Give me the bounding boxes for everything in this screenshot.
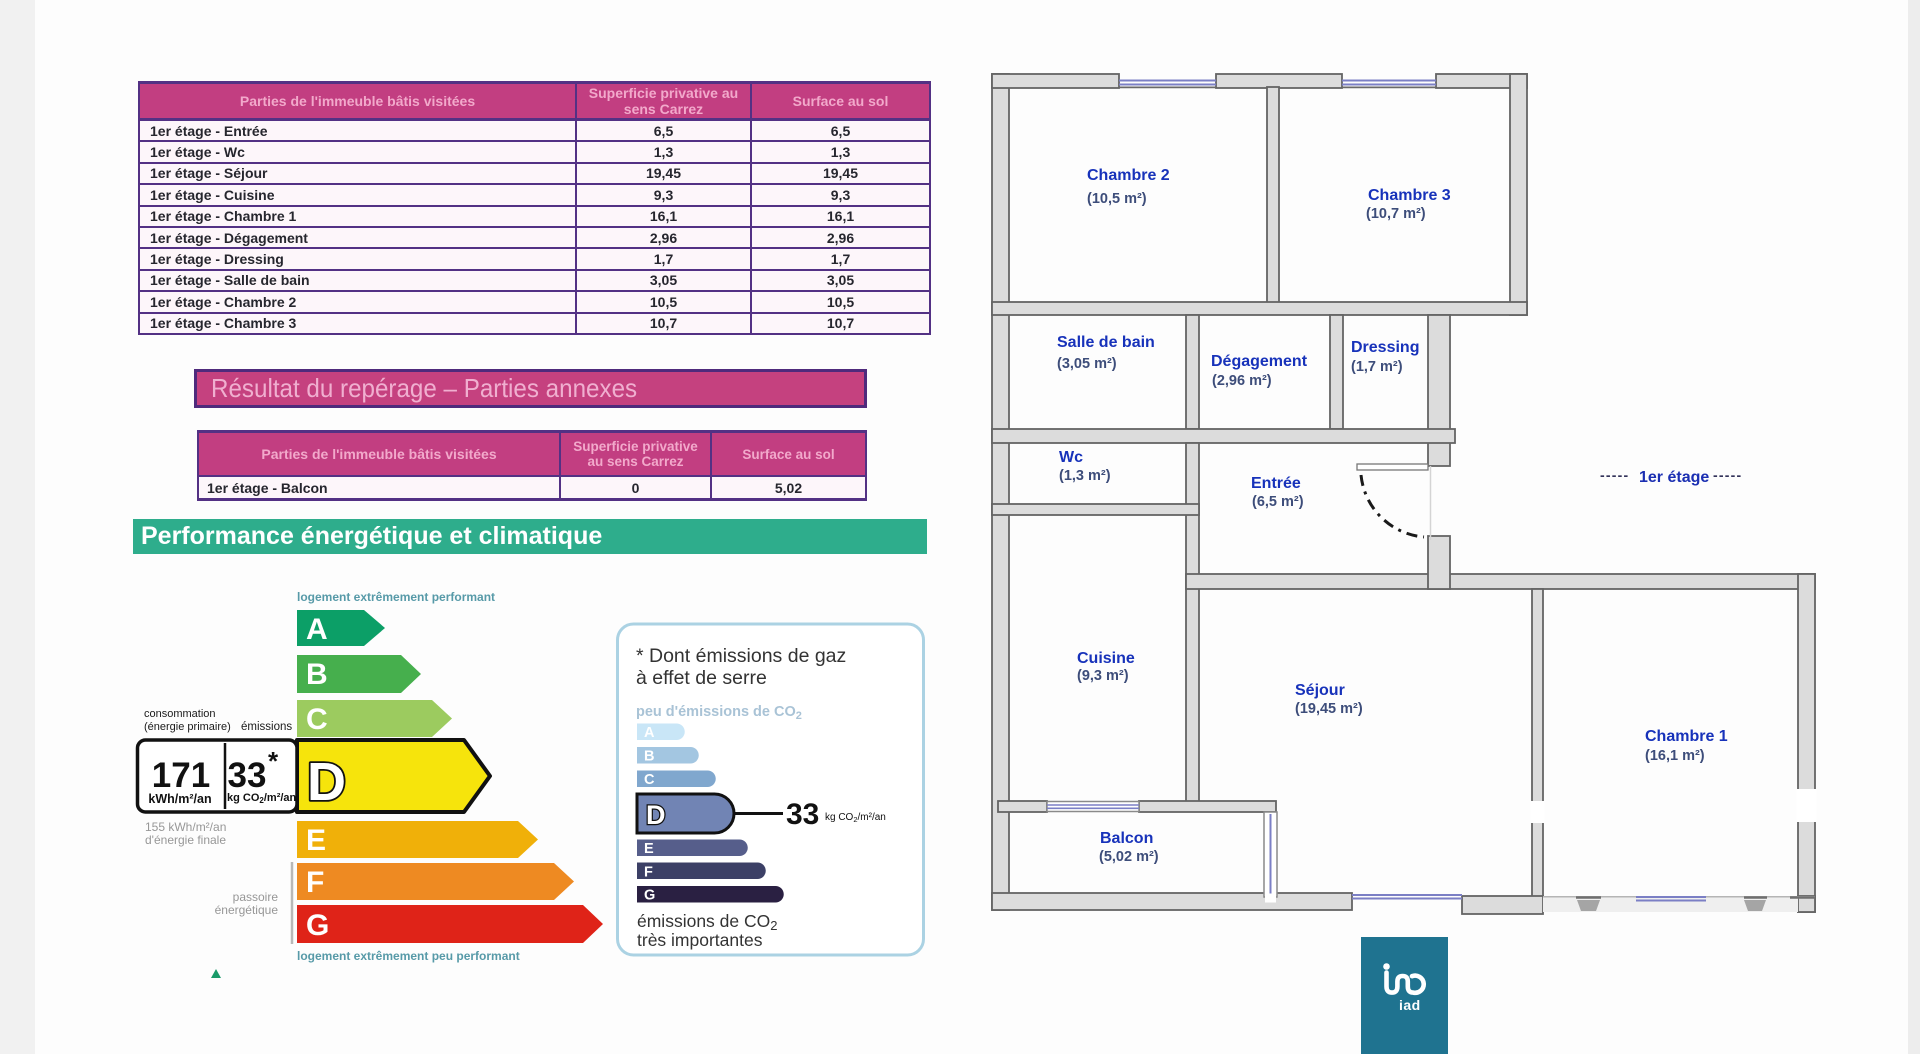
svg-text:(9,3 m²): (9,3 m²): [1077, 668, 1129, 684]
svg-text:(5,02 m²): (5,02 m²): [1099, 849, 1159, 865]
svg-text:(1,3 m²): (1,3 m²): [1059, 468, 1111, 484]
svg-text:Chambre 1: Chambre 1: [1645, 728, 1728, 745]
svg-text:-----: -----: [1713, 467, 1742, 483]
svg-text:-----: -----: [1600, 467, 1629, 483]
svg-text:E: E: [644, 841, 654, 857]
svg-text:171: 171: [152, 756, 210, 795]
svg-text:33: 33: [228, 756, 267, 795]
svg-text:émissions: émissions: [241, 721, 292, 733]
svg-text:B: B: [306, 658, 328, 691]
svg-text:G: G: [306, 909, 329, 942]
svg-text:kWh/m²/an: kWh/m²/an: [148, 792, 211, 806]
svg-text:consommation: consommation: [144, 708, 216, 720]
svg-text:D: D: [307, 752, 346, 812]
svg-text:F: F: [644, 865, 653, 881]
svg-text:très importantes: très importantes: [637, 930, 763, 950]
svg-text:*: *: [268, 746, 279, 776]
svg-text:Salle de bain: Salle de bain: [1057, 334, 1155, 351]
svg-text:Wc: Wc: [1059, 449, 1083, 466]
svg-text:Dégagement: Dégagement: [1211, 353, 1308, 370]
svg-text:B: B: [644, 749, 654, 765]
svg-text:E: E: [306, 824, 326, 857]
svg-text:Chambre 3: Chambre 3: [1368, 187, 1451, 204]
svg-text:(16,1 m²): (16,1 m²): [1645, 748, 1705, 764]
svg-text:D: D: [646, 800, 666, 830]
svg-text:(10,7 m²): (10,7 m²): [1366, 206, 1426, 222]
svg-text:Entrée: Entrée: [1251, 475, 1301, 492]
svg-text:Chambre 2: Chambre 2: [1087, 167, 1170, 184]
svg-text:d'énergie finale: d'énergie finale: [145, 833, 226, 847]
svg-text:Dressing: Dressing: [1351, 339, 1419, 356]
svg-text:(1,7 m²): (1,7 m²): [1351, 359, 1403, 375]
svg-text:passoire: passoire: [233, 890, 279, 904]
svg-text:C: C: [644, 772, 655, 788]
svg-text:logement extrêmement peu perfo: logement extrêmement peu performant: [297, 949, 520, 963]
svg-text:(10,5 m²): (10,5 m²): [1087, 191, 1147, 207]
svg-text:peu d'émissions de CO2: peu d'émissions de CO2: [636, 704, 802, 722]
svg-text:Cuisine: Cuisine: [1077, 650, 1135, 667]
svg-text:* Dont émissions de gaz: * Dont émissions de gaz: [636, 645, 846, 667]
svg-text:(énergie primaire): (énergie primaire): [144, 721, 231, 733]
svg-text:A: A: [306, 613, 328, 646]
svg-text:F: F: [306, 866, 324, 899]
svg-text:1er étage: 1er étage: [1639, 469, 1709, 486]
svg-text:logement extrêmement performan: logement extrêmement performant: [297, 590, 495, 604]
svg-text:(6,5 m²): (6,5 m²): [1252, 494, 1304, 510]
svg-text:(19,45 m²): (19,45 m²): [1295, 701, 1363, 717]
svg-text:33: 33: [786, 798, 819, 831]
svg-text:A: A: [644, 725, 655, 741]
svg-text:C: C: [306, 703, 328, 736]
svg-text:(2,96 m²): (2,96 m²): [1212, 373, 1272, 389]
svg-text:G: G: [644, 888, 655, 904]
svg-text:à effet de serre: à effet de serre: [636, 667, 767, 689]
svg-text:Séjour: Séjour: [1295, 682, 1345, 699]
svg-text:155 kWh/m²/an: 155 kWh/m²/an: [145, 820, 226, 834]
svg-text:(3,05 m²): (3,05 m²): [1057, 356, 1117, 372]
svg-text:énergétique: énergétique: [215, 903, 279, 917]
svg-text:iad: iad: [1399, 997, 1421, 1013]
svg-text:Balcon: Balcon: [1100, 830, 1153, 847]
